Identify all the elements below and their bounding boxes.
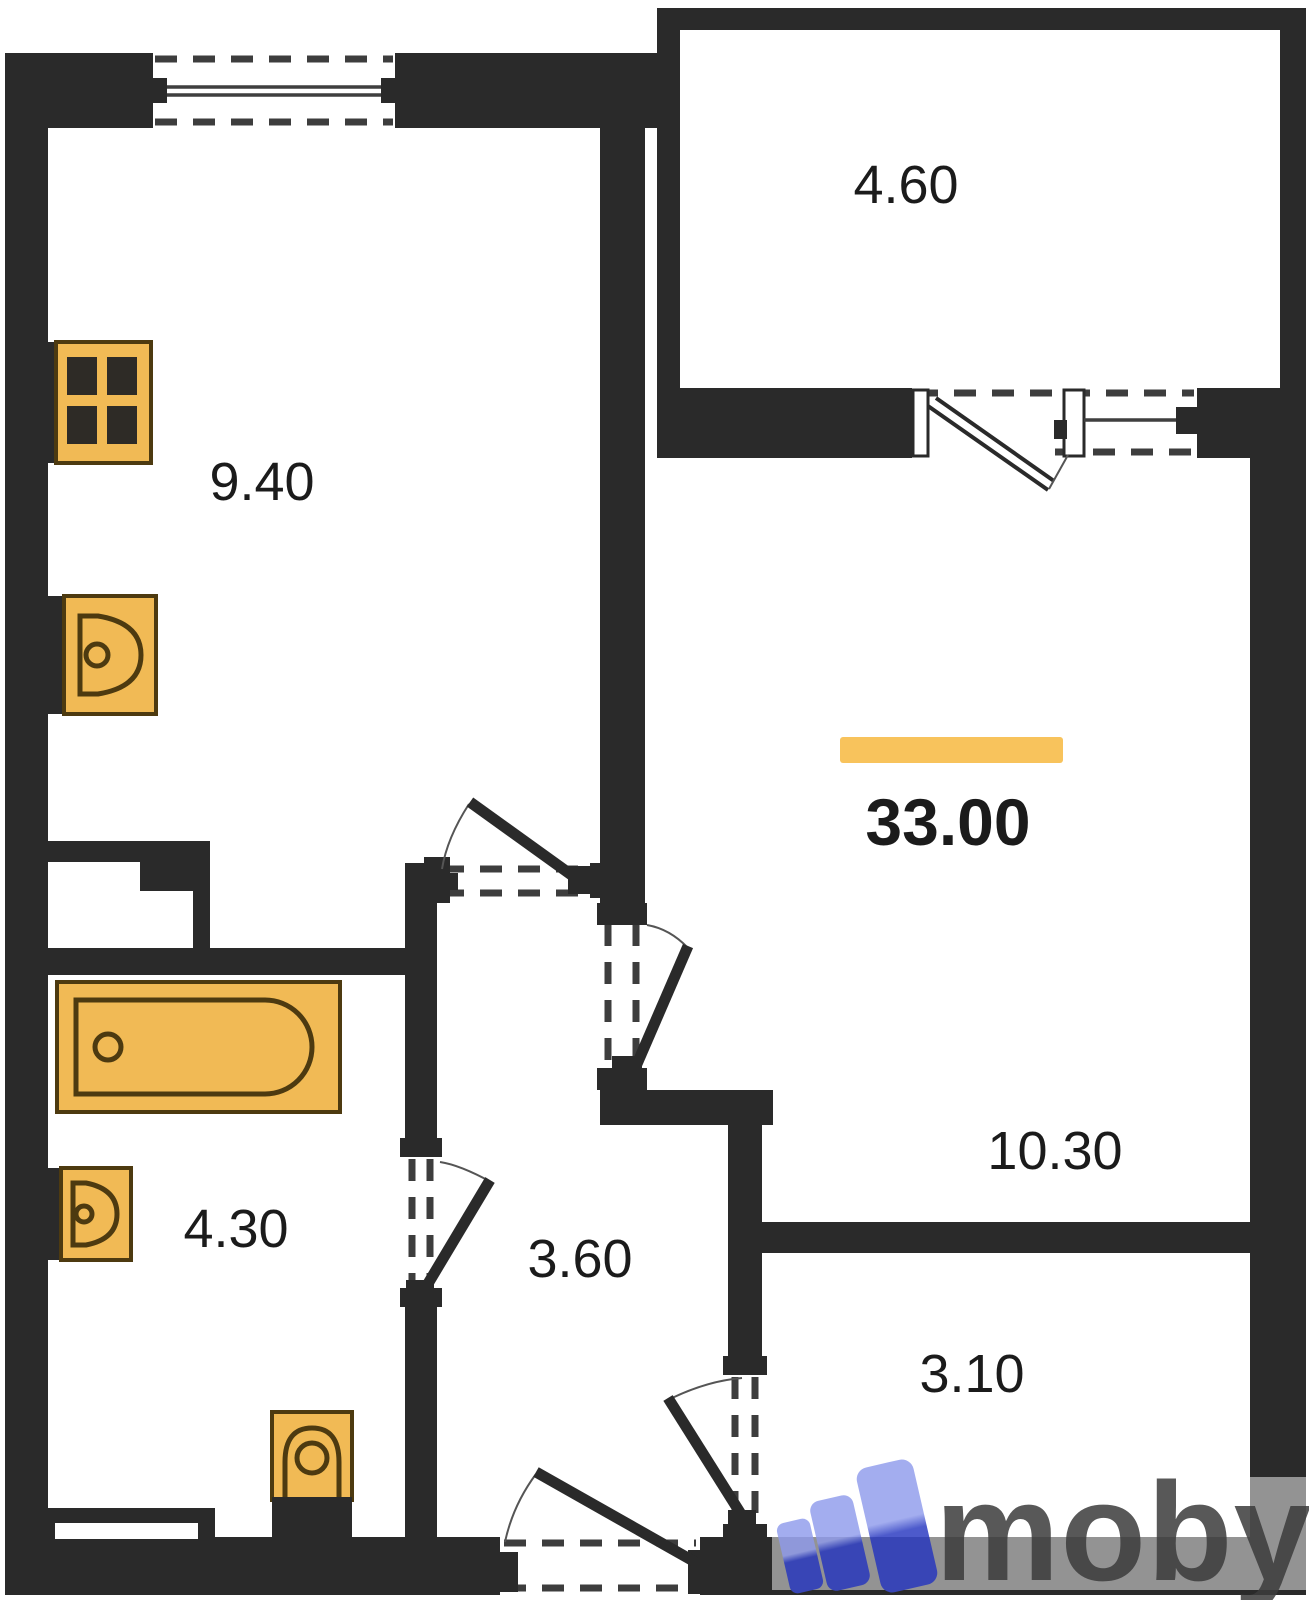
vent-shaft-icon	[45, 1508, 215, 1545]
total-area-value: 33.00	[865, 784, 1030, 860]
room-area-hallway: 3.60	[527, 1228, 632, 1290]
balcony-door-window	[913, 390, 1202, 490]
stove-icon	[42, 342, 151, 463]
kitchen-door	[424, 802, 594, 903]
entry-room-door	[668, 1356, 767, 1544]
room-area-entry-room: 3.10	[919, 1343, 1024, 1405]
bathroom-door	[400, 1138, 491, 1307]
walls	[5, 8, 1306, 1595]
bathroom-sink-icon	[46, 1168, 131, 1260]
room-area-bathroom: 4.30	[183, 1198, 288, 1260]
living-room-door	[597, 903, 688, 1090]
floor-plan-drawing	[0, 0, 1309, 1600]
floor-plan: 4.60 9.40 10.30 4.30 3.60 3.10 33.00 mob…	[0, 0, 1309, 1600]
kitchen-sink-icon	[48, 596, 156, 714]
bathtub-icon	[57, 982, 340, 1112]
total-area-highlight	[840, 737, 1063, 763]
kitchen-window	[150, 59, 398, 122]
entry-door	[496, 1472, 716, 1595]
room-area-balcony: 4.60	[853, 154, 958, 216]
toilet-icon	[272, 1412, 352, 1537]
moby-logo-text: moby	[935, 1462, 1309, 1600]
room-area-living-room: 10.30	[987, 1120, 1122, 1182]
room-area-kitchen: 9.40	[209, 451, 314, 513]
